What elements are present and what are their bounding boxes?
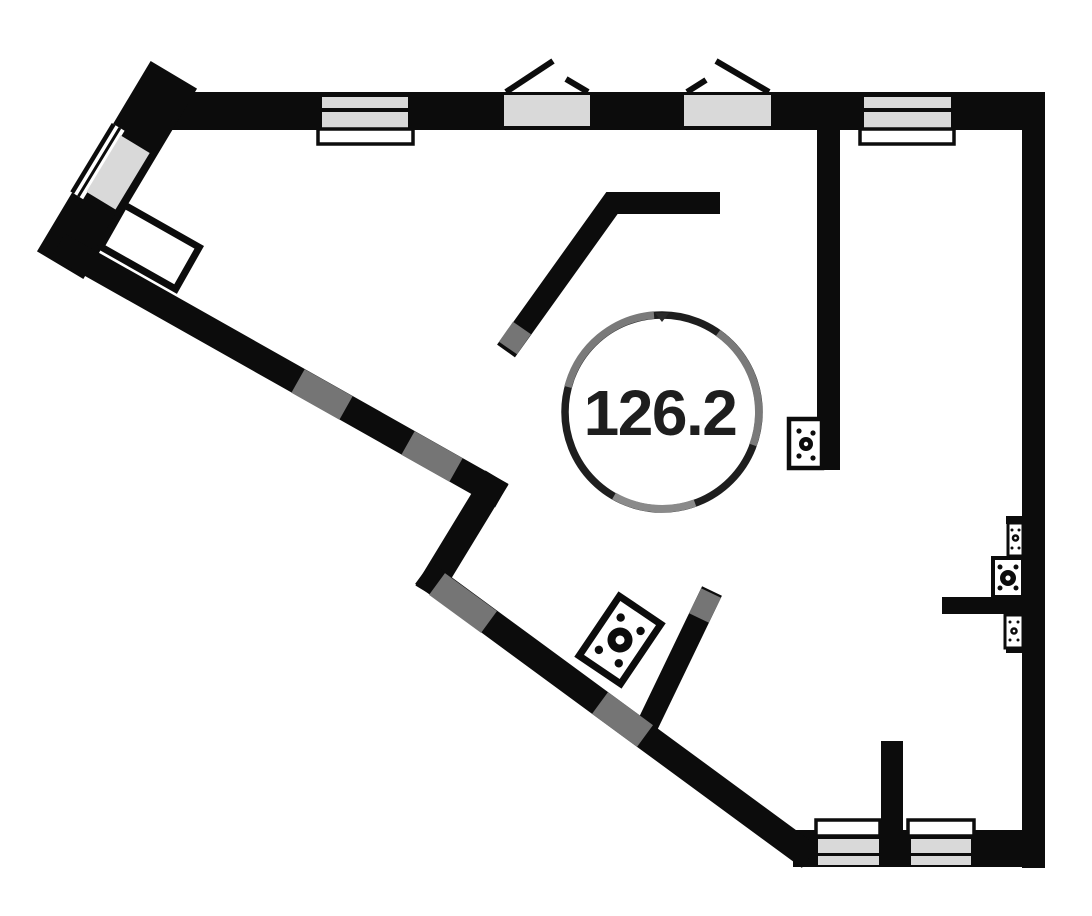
window-glass xyxy=(504,95,590,126)
box-dot xyxy=(1014,586,1019,591)
gray-segment xyxy=(600,703,645,736)
window-bottom-1 xyxy=(816,820,880,865)
box-dot xyxy=(1018,547,1021,550)
open-sash-icon xyxy=(716,61,769,92)
box-dot xyxy=(1017,639,1020,642)
window-band xyxy=(818,839,879,853)
box-dot xyxy=(1009,621,1012,624)
area-label-badge: 126.2 xyxy=(565,313,759,509)
box-dot xyxy=(1009,639,1012,642)
window-band xyxy=(911,856,971,865)
gray-segment xyxy=(408,443,456,470)
junction-box-rotated-icon xyxy=(579,596,661,684)
window-sill xyxy=(908,820,974,836)
box-center-hole xyxy=(1014,537,1017,540)
floor-plan-drawing: 126.2 xyxy=(0,0,1092,916)
gray-segment xyxy=(437,584,489,622)
window-top-4 xyxy=(860,97,954,144)
window-band xyxy=(864,97,951,108)
window-sill xyxy=(816,820,880,836)
wall-right xyxy=(1022,92,1045,868)
window-bottom-2 xyxy=(908,820,974,865)
floor-plan-canvas: 126.2 xyxy=(0,0,1092,916)
box-dot xyxy=(1011,547,1014,550)
window-sill xyxy=(860,129,954,144)
open-sash-icon xyxy=(506,61,553,92)
box-dot xyxy=(810,430,815,435)
box-dot xyxy=(1018,529,1021,532)
window-band xyxy=(911,839,971,853)
box-center-hole xyxy=(804,442,808,446)
box-dot xyxy=(998,586,1003,591)
gray-segment xyxy=(508,328,522,348)
window-sill xyxy=(318,129,413,144)
box-dot xyxy=(998,565,1003,570)
box-dot xyxy=(796,453,801,458)
junction-box-medium-icon xyxy=(993,558,1023,597)
junction-box-small-icon xyxy=(1008,523,1023,556)
box-center-hole xyxy=(1005,575,1010,580)
window-band xyxy=(322,112,408,128)
gray-segment xyxy=(298,381,346,408)
open-sash-icon xyxy=(687,80,706,92)
junction-box-icon xyxy=(789,419,822,468)
window-band xyxy=(864,112,951,128)
interior-stub-bottom xyxy=(881,741,903,832)
window-top-1 xyxy=(318,97,413,144)
box-dot xyxy=(1011,529,1014,532)
window-glass xyxy=(684,95,771,126)
window-band xyxy=(322,97,408,108)
area-value: 126.2 xyxy=(584,377,737,449)
interior-walls xyxy=(506,130,1023,832)
gray-segment xyxy=(699,593,711,618)
interior-stub-right xyxy=(942,597,1022,614)
box-center-hole xyxy=(1013,630,1016,633)
box-dot xyxy=(796,428,801,433)
window-band xyxy=(818,856,879,865)
open-sash-icon xyxy=(566,79,588,92)
box-dot xyxy=(1017,621,1020,624)
box-dot xyxy=(1014,565,1019,570)
junction-box-small-icon xyxy=(1005,615,1023,648)
box-dot xyxy=(810,455,815,460)
wall-notch xyxy=(434,489,490,581)
